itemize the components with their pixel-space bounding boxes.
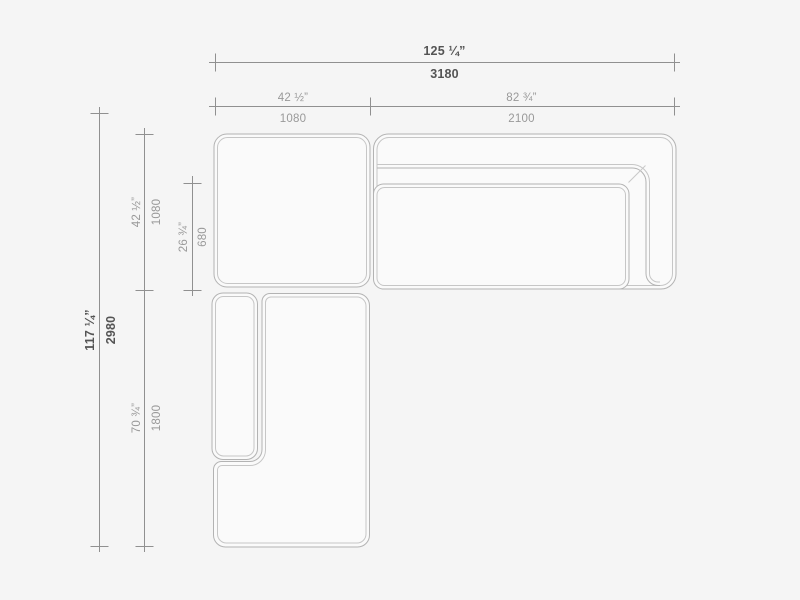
dim-label-right-width-inches: 82 ¾” bbox=[506, 92, 536, 104]
dim-label-chaise-depth-mm: 1800 bbox=[151, 405, 163, 431]
dim-label-right-width-mm: 2100 bbox=[508, 113, 534, 125]
dim-label-corner-width-mm: 1080 bbox=[280, 113, 306, 125]
dim-label-chaise-depth-inches: 70 ¾” bbox=[131, 403, 143, 433]
chaise-armrest-outline bbox=[212, 293, 258, 460]
dim-label-seat-depth-inches: 26 ¾” bbox=[178, 221, 190, 251]
dim-label-overall-width-mm: 3180 bbox=[430, 67, 459, 81]
dim-label-corner-depth-mm: 1080 bbox=[151, 198, 163, 224]
corner-module bbox=[214, 134, 370, 287]
corner-module-outline bbox=[214, 134, 370, 287]
dimension-lines bbox=[91, 54, 681, 553]
dim-label-overall-width-inches: 125 ¼” bbox=[423, 44, 465, 58]
dim-label-overall-depth-mm: 2980 bbox=[104, 316, 118, 345]
dim-label-seat-depth-mm: 680 bbox=[197, 227, 209, 247]
sofa-dimension-drawing: 125 ¼” 3180 42 ½” 1080 82 ¾” 2100 117 ¼”… bbox=[0, 0, 800, 600]
right-seat-outline bbox=[374, 184, 630, 289]
dim-label-overall-depth-inches: 117 ¼” bbox=[83, 309, 97, 351]
dim-label-corner-width-inches: 42 ½” bbox=[278, 92, 308, 104]
right-section bbox=[374, 134, 677, 289]
sofa-plan-svg bbox=[0, 0, 800, 600]
chaise-section bbox=[212, 293, 370, 547]
dim-label-corner-depth-inches: 42 ½” bbox=[131, 196, 143, 226]
